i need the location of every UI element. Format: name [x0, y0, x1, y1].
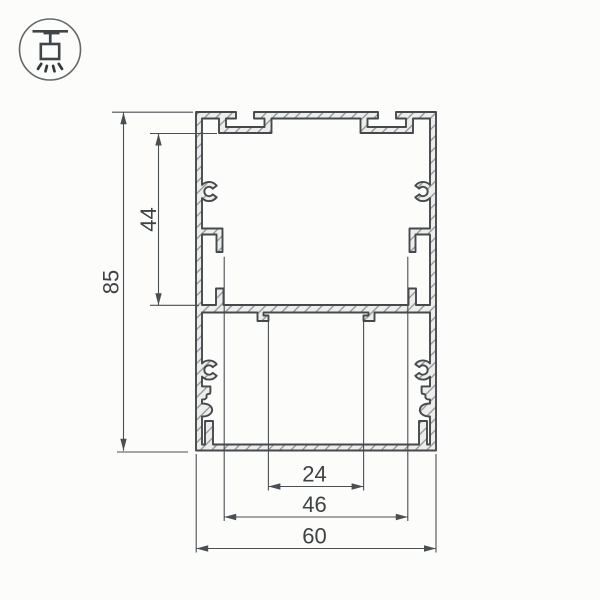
svg-text:60: 60	[302, 524, 326, 549]
svg-text:85: 85	[99, 270, 124, 294]
svg-text:46: 46	[302, 492, 326, 517]
svg-text:24: 24	[302, 462, 326, 487]
svg-text:44: 44	[136, 207, 161, 231]
